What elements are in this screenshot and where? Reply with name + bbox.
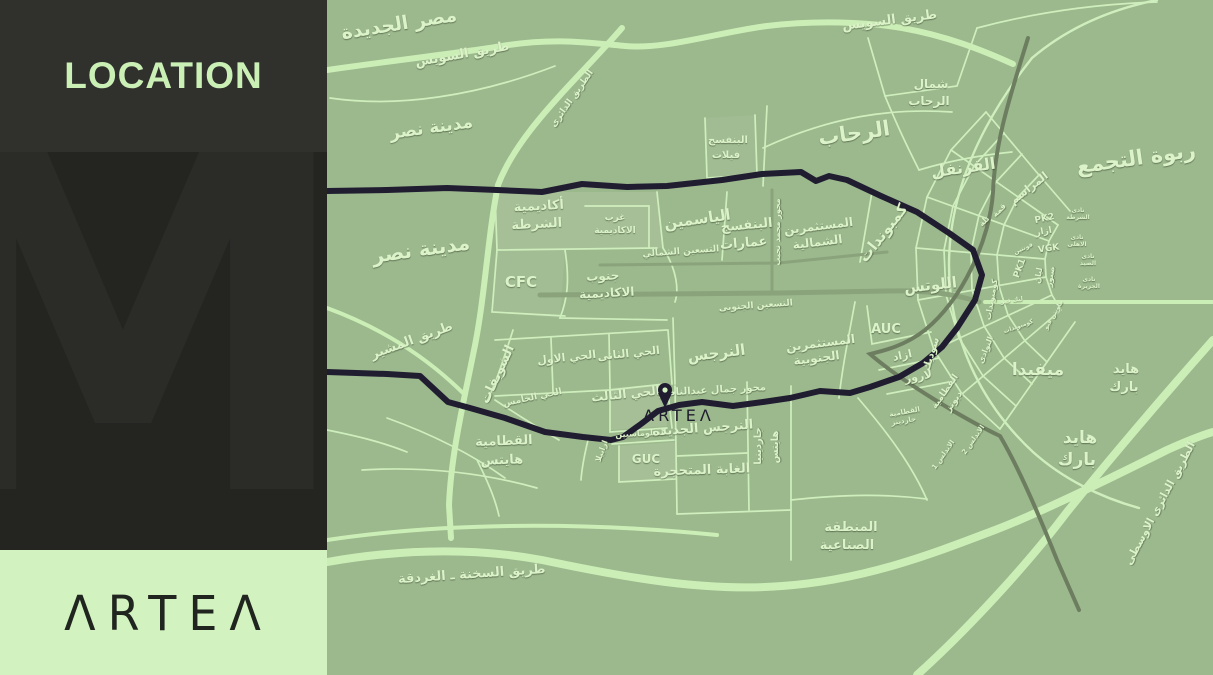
map-label: ميفيدا xyxy=(1012,360,1064,380)
map-label: الصناعية xyxy=(820,538,874,553)
page-title: LOCATION xyxy=(64,55,262,97)
map-label: بارك xyxy=(1109,380,1138,395)
map-label: AUC xyxy=(871,322,901,337)
left-panel: LOCATION M ΛRTEΛ xyxy=(0,0,327,675)
title-block: LOCATION xyxy=(0,0,327,152)
map-label: نادى xyxy=(1071,207,1084,214)
map-label: البنفسج xyxy=(708,135,748,146)
slide: LOCATION M ΛRTEΛ xyxy=(0,0,1213,675)
map-label: القطامية xyxy=(475,433,533,450)
map-label: الجزيرة xyxy=(1078,283,1100,290)
map-label: هايد xyxy=(1063,428,1097,448)
map-label: CFC xyxy=(505,273,537,291)
map-label: نادى xyxy=(1081,253,1094,260)
map-label: جنوب xyxy=(586,268,620,285)
map-label: محور محمد نجيب xyxy=(773,198,782,265)
map-label: نادى xyxy=(1082,276,1095,283)
marker-brand-label: ΛRTEΛ xyxy=(643,406,715,425)
brand-watermark: M xyxy=(0,152,327,550)
map-label: الصيد xyxy=(1080,260,1096,267)
map-label: هايتس xyxy=(770,431,781,464)
map-label: غرب xyxy=(605,213,626,223)
artea-logo: ΛRTEΛ xyxy=(54,584,273,641)
map-label: نادى xyxy=(1070,234,1083,241)
map-label: الشرطة xyxy=(511,216,562,234)
map-label: الاهلى xyxy=(1067,241,1086,248)
map-label: الشرطة xyxy=(1066,214,1089,221)
map-label: هايد xyxy=(1113,362,1139,377)
map-label: الاكاديمية xyxy=(579,285,635,302)
map-label: بارك xyxy=(1058,450,1096,470)
panel-body: M xyxy=(0,152,327,550)
map-label: الرحاب xyxy=(908,94,949,108)
map-label: جاردينيا xyxy=(753,427,764,465)
map-label: هايتس xyxy=(480,452,523,468)
map-label: شمال xyxy=(914,77,949,91)
map-label: الاكاديمية xyxy=(594,226,636,236)
map-label: المنطقة xyxy=(824,520,877,535)
map-svg: مصر الجديدةطريق السويسمدينة نصرمدينة نصر… xyxy=(327,0,1213,675)
pin-dot xyxy=(662,387,667,392)
map-canvas: مصر الجديدةطريق السويسمدينة نصرمدينة نصر… xyxy=(327,0,1213,675)
logo-panel: ΛRTEΛ xyxy=(0,550,327,675)
map-label: فيلات xyxy=(712,150,740,161)
